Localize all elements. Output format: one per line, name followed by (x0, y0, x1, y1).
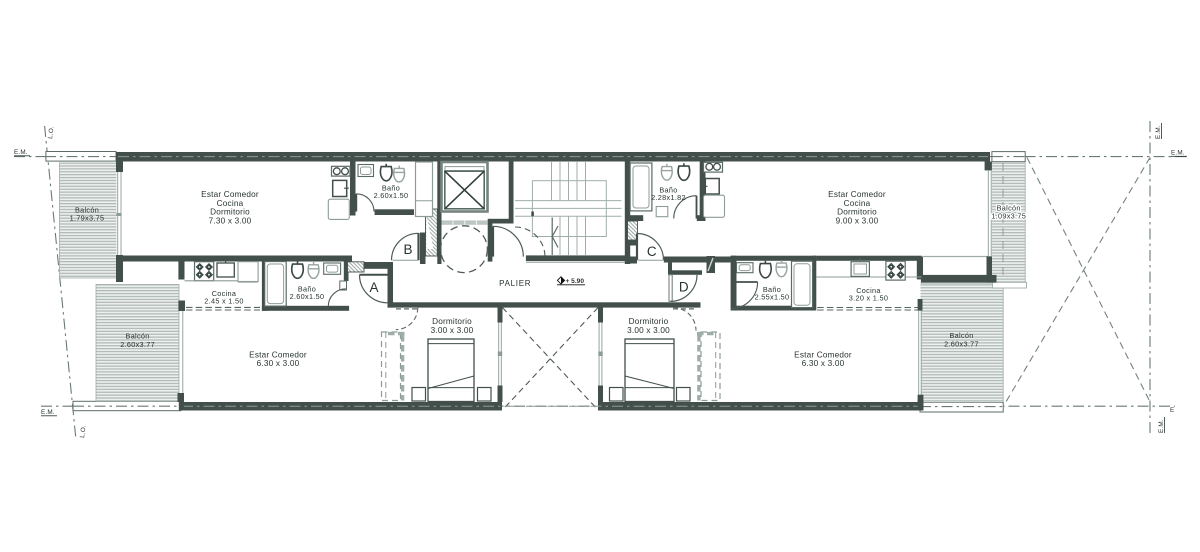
svg-text:Dormitorio: Dormitorio (837, 208, 877, 217)
svg-text:6.30 x 3.00: 6.30 x 3.00 (257, 359, 300, 368)
svg-text:2.45 x 1.50: 2.45 x 1.50 (204, 297, 243, 306)
svg-text:+ 5.90: + 5.90 (566, 278, 585, 285)
svg-text:Dormitorio: Dormitorio (629, 317, 669, 326)
svg-text:2.55x1.50: 2.55x1.50 (755, 293, 790, 302)
svg-text:B: B (403, 242, 412, 257)
svg-text:E.M.: E.M. (41, 409, 55, 416)
svg-text:3.00 x 3.00: 3.00 x 3.00 (431, 326, 474, 335)
svg-text:Estar Comedor: Estar Comedor (201, 190, 259, 199)
svg-text:Cocina: Cocina (844, 199, 871, 208)
svg-text:3.00 x 3.00: 3.00 x 3.00 (627, 326, 670, 335)
svg-text:E: E (1170, 407, 1174, 414)
svg-text:9.00 x 3.00: 9.00 x 3.00 (836, 217, 879, 226)
svg-text:7.30 x 3.00: 7.30 x 3.00 (209, 217, 252, 226)
svg-text:Estar Comedor: Estar Comedor (828, 190, 886, 199)
svg-text:E.M.: E.M. (14, 149, 28, 156)
svg-text:E.M.: E.M. (1158, 419, 1165, 433)
svg-text:2.60x1.50: 2.60x1.50 (290, 292, 325, 301)
svg-text:1.09x3.75: 1.09x3.75 (991, 212, 1026, 221)
svg-text:3.20 x 1.50: 3.20 x 1.50 (849, 294, 888, 303)
svg-text:C: C (647, 244, 657, 259)
svg-text:2.60x3.77: 2.60x3.77 (944, 340, 979, 349)
svg-text:D: D (679, 280, 689, 295)
svg-text:E.M.: E.M. (1155, 125, 1162, 139)
svg-text:2.60x3.77: 2.60x3.77 (120, 340, 155, 349)
svg-text:6.30 x 3.00: 6.30 x 3.00 (802, 359, 845, 368)
svg-text:PALIER: PALIER (499, 279, 531, 288)
svg-text:Dormitorio: Dormitorio (210, 208, 250, 217)
svg-text:2.28x1.82: 2.28x1.82 (651, 193, 686, 202)
svg-text:E.M.: E.M. (1171, 150, 1185, 157)
svg-text:2.60x1.50: 2.60x1.50 (374, 191, 409, 200)
svg-text:Cocina: Cocina (217, 199, 244, 208)
svg-text:A: A (369, 280, 378, 295)
svg-text:1.79x3.75: 1.79x3.75 (70, 213, 105, 222)
svg-text:Dormitorio: Dormitorio (432, 317, 472, 326)
